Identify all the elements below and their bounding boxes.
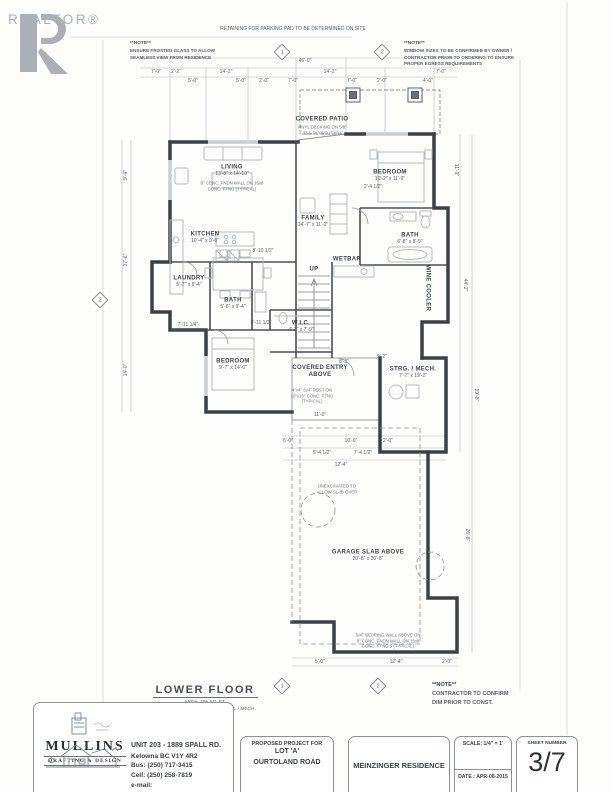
right-note: **NOTE** WINDOW SIZES TO BE CONFIRMED BY… [404,41,514,67]
contact-city: Kelowna BC V1Y 4R2 [131,752,231,762]
contact-bus-phone: Bus: (250) 717-3415 [131,761,231,771]
project-road: OURTOLAND ROAD [241,758,333,769]
title-block-sheet-cell: SHEET NUMBER 3/7 [516,736,578,792]
title-block-company-cell: MULLINS DRAFTING & DESIGN UNIT 203 - 188… [33,702,234,792]
bottom-right-note: **NOTE** CONTRACTOR TO CONFIRM DIM PRIOR… [432,681,552,707]
floor-plan-drawing [0,0,612,792]
scale-label: SCALE: 1/4" = 1' [455,737,511,747]
title-block-residence-cell: MEINZINGER RESIDENCE [348,736,450,792]
sheet-number: 3/7 [517,747,577,778]
company-logo: MULLINS DRAFTING & DESIGN [42,739,128,768]
stamp-icon [68,711,128,737]
date-label: DATE : APR-08-2015 [455,770,511,780]
note-body: CONTRACTOR TO CONFIRM DIM PRIOR TO CONST… [432,690,552,707]
company-contact: UNIT 203 - 1889 SPALL RD. Kelowna BC V1Y… [131,741,231,792]
realtor-logo: REALTOR® [8,10,98,27]
left-note: **NOTE** ENSURE FROSTED GLASS TO ALLOW S… [130,41,250,61]
house-sketch [42,739,122,771]
title-block-project-cell: PROPOSED PROJECT FOR LOT 'A' OURTOLAND R… [240,736,334,792]
note-title: **NOTE** [404,41,514,47]
title-block-scale-cell: SCALE: 1/4" = 1' DATE : APR-08-2015 [454,736,512,792]
contact-email: e-mail: mullinsdrafting@shaw.ca [131,781,231,792]
note-title: **NOTE** [130,41,250,47]
residence-name: MEINZINGER RESIDENCE [349,761,449,770]
note-body: WINDOW SIZES TO BE CONFIRMED BY OWNER / … [404,48,514,67]
note-title: **NOTE** [432,681,552,689]
retaining-note: RETAINING FOR PARKING PAD TO BE DETERMIN… [168,26,418,33]
lower-floor-title: LOWER FLOOR [153,684,258,698]
drawing-sheet: REALTOR® LIVING13'-8" x 14'-10"KITCHEN10… [0,0,612,792]
sheet-number-heading: SHEET NUMBER [517,741,577,746]
contact-cell-phone: Cell: (250) 258-7819 [131,771,231,781]
note-body: ENSURE FROSTED GLASS TO ALLOW SEAMLESS V… [130,48,250,60]
project-lot: LOT 'A' [241,747,333,758]
realtor-r-icon [8,10,86,82]
contact-address: UNIT 203 - 1889 SPALL RD. [131,741,231,752]
